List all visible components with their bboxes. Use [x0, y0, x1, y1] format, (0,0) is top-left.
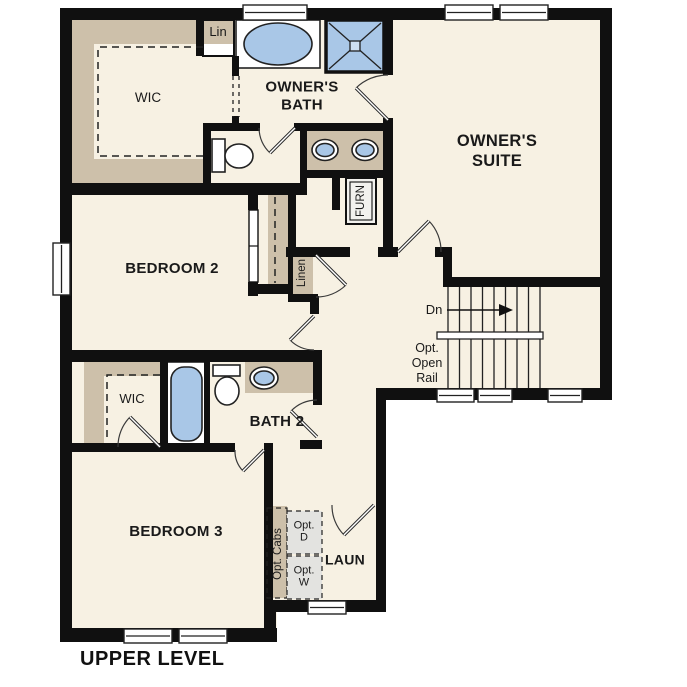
window	[53, 243, 70, 295]
window	[548, 389, 582, 402]
window	[445, 5, 493, 20]
toilet-bath2	[213, 365, 240, 405]
label-furnace: FURN	[355, 185, 367, 217]
shower-owners	[326, 20, 384, 72]
label-owners-wic: WIC	[135, 90, 161, 106]
window	[243, 5, 307, 20]
window	[124, 629, 172, 643]
window	[179, 629, 227, 643]
bathtub-owners	[236, 20, 320, 68]
label-owners-suite: OWNER'S SUITE	[457, 131, 537, 171]
label-linen: Linen	[296, 259, 308, 287]
window	[478, 389, 512, 402]
label-opt-cabs: Opt. Cabs	[272, 528, 284, 580]
page-title: UPPER LEVEL	[80, 648, 224, 671]
sink-bath2	[250, 367, 278, 389]
label-wic-bedroom3: WIC	[119, 391, 144, 407]
window	[308, 601, 346, 614]
label-bedroom3: BEDROOM 3	[129, 523, 223, 541]
closet-sliding-door-bedroom2	[249, 210, 258, 282]
label-opt-open-rail: Opt. Open Rail	[412, 341, 443, 385]
label-bath2: BATH 2	[250, 413, 305, 431]
label-lin-closet: Lin	[209, 24, 226, 40]
floor-plan: Lin WIC OWNER'S BATH OWNER'S SUITE FURN …	[0, 0, 687, 687]
bathtub-bath2	[166, 362, 206, 446]
floor-plan-drawing	[0, 0, 687, 687]
label-laundry: LAUN	[325, 551, 365, 568]
label-bedroom2: BEDROOM 2	[125, 260, 219, 278]
label-opt-dryer: Opt. D	[294, 520, 315, 543]
window	[437, 389, 474, 402]
stair-railing	[437, 332, 543, 339]
label-owners-bath: OWNER'S BATH	[265, 79, 338, 116]
label-stairs-down: Dn	[426, 302, 443, 318]
window	[500, 5, 548, 20]
label-opt-washer: Opt. W	[294, 565, 315, 588]
